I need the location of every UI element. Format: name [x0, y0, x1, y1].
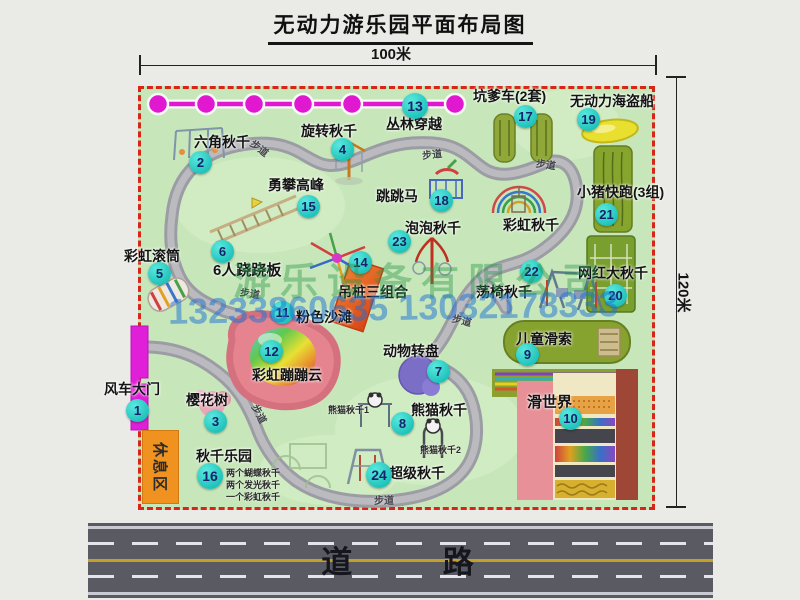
- dimension-tick-right-top: [666, 76, 686, 78]
- page-title: 无动力游乐园平面布局图: [0, 9, 800, 45]
- label-pink-beach: 粉色沙滩: [296, 307, 352, 327]
- marker-18: 18: [430, 189, 453, 212]
- marker-4: 4: [331, 138, 354, 161]
- label-panda-swing-2: 熊猫秋千2: [420, 443, 461, 456]
- road-edge-top: [88, 526, 713, 529]
- rest-area-label: 休息区: [150, 441, 171, 492]
- page-title-text: 无动力游乐园平面布局图: [268, 9, 533, 45]
- label-rainbow-cloud: 彩虹蹦蹦云: [252, 365, 322, 385]
- marker-23: 23: [388, 230, 411, 253]
- label-piggy-run: 小猪快跑(3组): [577, 182, 664, 202]
- label-jumping-horse: 跳跳马: [376, 186, 418, 206]
- road-edge-bottom: [88, 592, 713, 595]
- dimension-width-label: 100米: [371, 43, 411, 64]
- label-hanging-posts: 吊桩三组合: [338, 282, 408, 302]
- label-panda-swing-1: 熊猫秋千1: [328, 403, 369, 416]
- marker-16: 16: [197, 463, 223, 489]
- label-windmill-gate: 风车大门: [104, 379, 160, 399]
- road: 道 路: [88, 523, 713, 598]
- marker-12: 12: [260, 340, 283, 363]
- marker-17: 17: [514, 105, 537, 128]
- marker-10: 10: [559, 407, 582, 430]
- label-pirate-ship: 无动力海盗船: [570, 91, 654, 111]
- label-kengdie-cars: 坑爹车(2套): [473, 86, 546, 106]
- label-climbing-peak: 勇攀高峰: [268, 175, 324, 195]
- label-big-swing: 网红大秋千: [578, 263, 648, 283]
- label-animal-wheel: 动物转盘: [383, 341, 439, 361]
- label-hex-swing: 六角秋千: [194, 132, 250, 152]
- marker-9: 9: [516, 343, 539, 366]
- label-rotary-swing: 旋转秋千: [301, 121, 357, 141]
- marker-2: 2: [189, 151, 212, 174]
- label-cherry-tree: 樱花树: [186, 390, 228, 410]
- marker-24: 24: [366, 462, 392, 488]
- label-rainbow-roller: 彩虹滚筒: [124, 246, 180, 266]
- marker-8: 8: [391, 412, 414, 435]
- road-label: 道 路: [88, 537, 713, 582]
- marker-14: 14: [349, 251, 372, 274]
- park-layout-map: 无动力游乐园平面布局图 100米 120米: [0, 0, 800, 600]
- marker-21: 21: [595, 203, 618, 226]
- footpath-label-7: 步道: [374, 492, 394, 507]
- dimension-tick-top-right: [655, 55, 657, 75]
- footpath-label-2: 步道: [421, 145, 442, 162]
- marker-3: 3: [204, 410, 227, 433]
- swing-park-note-3: 一个彩虹秋千: [226, 490, 280, 503]
- marker-13: 13: [402, 93, 428, 119]
- marker-7: 7: [427, 360, 450, 383]
- dimension-tick-top-left: [139, 55, 141, 75]
- label-chair-swing: 荡椅秋千: [476, 282, 532, 302]
- footpath-label-4: 步道: [239, 283, 261, 301]
- dimension-height-label: 120米: [674, 272, 695, 312]
- label-rainbow-swing: 彩虹秋千: [503, 215, 559, 235]
- marker-6: 6: [211, 240, 234, 263]
- marker-11: 11: [271, 301, 294, 324]
- label-super-swing: 超级秋千: [389, 463, 445, 483]
- dimension-line-top: [140, 65, 656, 66]
- marker-20: 20: [604, 284, 627, 307]
- label-panda-swing: 熊猫秋千: [411, 400, 467, 420]
- marker-19: 19: [577, 108, 600, 131]
- dimension-tick-right-bottom: [666, 506, 686, 508]
- footpath-label-3: 步道: [535, 155, 557, 173]
- label-bubble-swing: 泡泡秋千: [405, 218, 461, 238]
- marker-5: 5: [148, 262, 171, 285]
- marker-15: 15: [297, 195, 320, 218]
- rest-area: 休息区: [142, 430, 179, 504]
- marker-1: 1: [126, 399, 149, 422]
- marker-22: 22: [520, 260, 543, 283]
